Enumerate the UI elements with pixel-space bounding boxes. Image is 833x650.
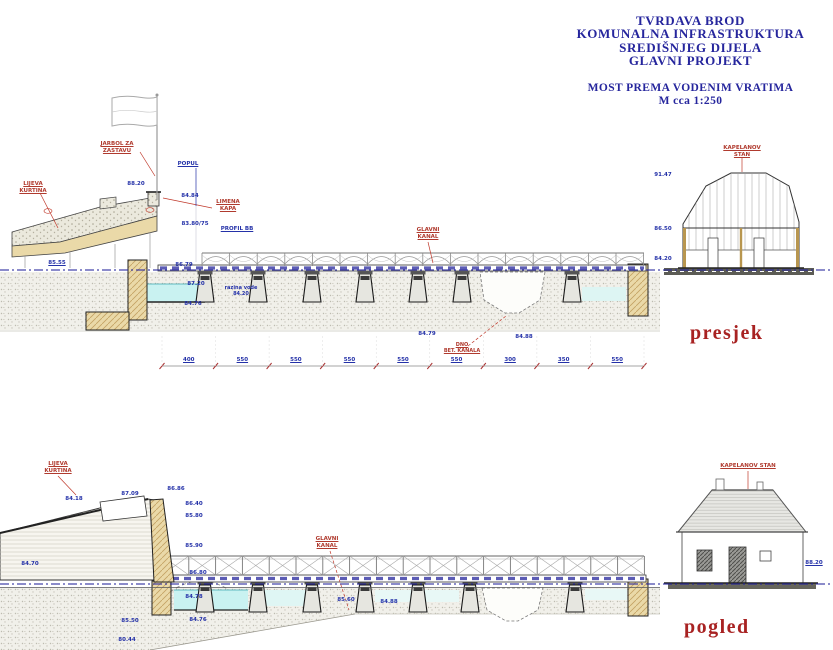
roof [678,490,806,532]
door-opening [754,238,764,268]
section-view-linework [0,94,833,370]
dimension-line [160,336,647,369]
window [760,551,771,561]
project-title-line2: KOMUNALNA INFRASTRUKTURA [548,27,833,40]
bridge-railing-section [202,253,644,266]
door [729,547,746,583]
elevation-view-linework [0,479,833,650]
project-title-line3: SREDIŠNJEG DIJELA [548,41,833,54]
canal-cut-elevation [482,588,543,621]
project-title-line1: TVRDAVA BROD [548,14,833,27]
title-block: TVRDAVA BROD KOMUNALNA INFRASTRUKTURA SR… [548,14,833,107]
bridge-railing-elevation [160,556,644,575]
window [697,550,712,571]
ground-under-house [668,583,816,589]
right-abutment-section [628,264,648,316]
drawing-scale: M cca 1:250 [548,95,833,108]
drawing-sheet: TVRDAVA BROD KOMUNALNA INFRASTRUKTURA SR… [0,0,833,650]
rampart-elevation [0,496,174,582]
flag-mast [112,94,159,201]
bridge-deck-section [158,265,646,271]
bridge-deck-elevation [158,575,646,582]
house-elevation [664,479,818,583]
house-section [678,171,804,268]
left-abutment-section [128,260,147,320]
left-abutment-footing [86,312,129,330]
left-abutment-elevation [152,581,171,615]
project-title-line4: GLAVNI PROJEKT [548,54,833,67]
door-opening [708,238,718,268]
drawing-subtitle: MOST PREMA VODENIM VRATIMA [548,82,833,95]
chimney [757,482,763,490]
rampart-section [12,192,161,268]
chimney [716,479,724,490]
rampart-end-wall [150,499,174,582]
